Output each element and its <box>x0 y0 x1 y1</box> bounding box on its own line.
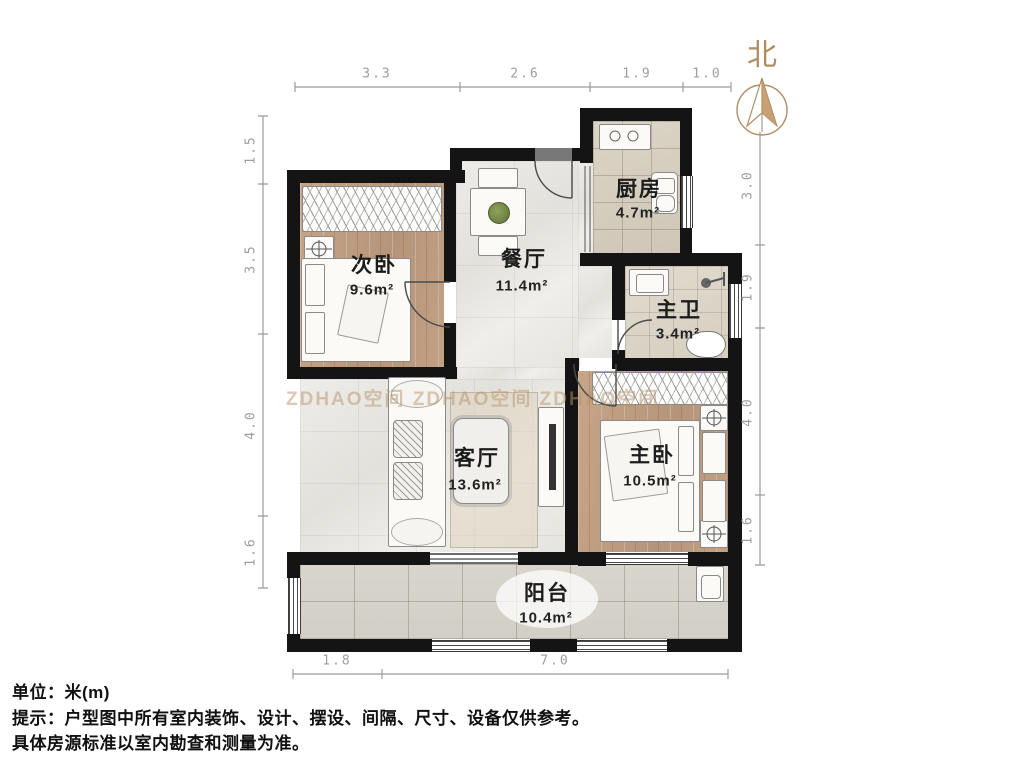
wall-segment <box>287 170 300 379</box>
burners-icon <box>600 125 650 149</box>
pillow <box>678 482 694 532</box>
wall-segment <box>287 552 300 578</box>
footer-disclaimer-2: 具体房源标准以室内勘查和测量为准。 <box>12 729 310 754</box>
pillow <box>305 264 325 306</box>
dim-right-3: 4.0 <box>741 397 756 426</box>
north-label: 北 <box>747 30 777 74</box>
floorplan-page: 3.3 2.6 1.9 1.0 1.5 3.5 4.0 1.6 3.0 1.9 … <box>0 0 1024 757</box>
wall-segment <box>728 552 742 652</box>
wall-segment <box>518 552 580 565</box>
wall-segment <box>580 253 742 266</box>
wall-segment <box>580 108 692 121</box>
entry-door-leaf <box>535 148 572 161</box>
dim-bottom-2: 7.0 <box>540 654 569 669</box>
washer-drum <box>701 575 721 599</box>
dim-top-1: 3.3 <box>362 67 391 82</box>
pillow <box>678 426 694 476</box>
window-bedroom-balcony <box>606 553 688 565</box>
wall-segment <box>450 148 535 161</box>
wall-segment <box>444 183 456 282</box>
ac-unit-icon <box>700 520 728 548</box>
dim-bottom-1: 1.8 <box>322 654 351 669</box>
basin <box>636 274 664 293</box>
wall-segment <box>450 148 462 183</box>
window-balcony-bottom-1 <box>432 640 530 652</box>
room-label-second-bedroom: 次卧 <box>351 249 397 279</box>
floor-dining-entry <box>578 161 593 266</box>
dining-chair-top <box>478 168 518 188</box>
footer-unit-note: 单位：米(m) <box>12 678 110 703</box>
dim-right-2: 1.9 <box>741 272 756 301</box>
dim-right-4: 1.6 <box>741 515 756 544</box>
dim-left-2: 3.5 <box>244 244 259 273</box>
dim-top-3: 1.9 <box>622 67 651 82</box>
window-balcony-bottom-2 <box>577 640 667 652</box>
room-label-living: 客厅 <box>454 442 500 472</box>
wall-segment <box>530 639 577 652</box>
dim-top-4: 1.0 <box>692 67 721 82</box>
dim-left-1: 1.5 <box>244 135 259 164</box>
window-kitchen <box>681 176 693 228</box>
room-area-dining: 11.4m² <box>496 278 549 295</box>
dim-top-2: 2.6 <box>510 67 539 82</box>
room-label-balcony: 阳台 <box>524 577 570 607</box>
wall-segment <box>444 323 456 379</box>
room-label-master-bedroom: 主卧 <box>629 439 675 469</box>
compass-icon <box>737 78 787 135</box>
room-label-bathroom: 主卫 <box>656 294 702 324</box>
floor-strip <box>457 367 565 379</box>
sofa-armrest <box>391 518 443 546</box>
room-area-master-bedroom: 10.5m² <box>623 473 677 490</box>
washing-machine <box>696 566 724 602</box>
room-area-bathroom: 3.4m² <box>656 326 700 343</box>
ac-fan-icon <box>701 521 727 547</box>
sofa-cushion <box>393 420 423 458</box>
window-balcony-left <box>288 578 301 634</box>
room-label-kitchen: 厨房 <box>616 173 662 203</box>
footer-disclaimer-1: 提示：户型图中所有室内装饰、设计、摆设、间隔、尺寸、设备仅供参考。 <box>12 704 590 729</box>
room-area-kitchen: 4.7m² <box>616 205 660 222</box>
pillow <box>305 312 325 354</box>
room-area-second-bedroom: 9.6m² <box>350 282 394 299</box>
room-area-living: 13.6m² <box>448 477 502 494</box>
room-label-dining: 餐厅 <box>501 243 547 273</box>
dim-left-4: 1.6 <box>244 537 259 566</box>
wall-segment <box>578 552 606 566</box>
wall-segment <box>612 266 625 320</box>
dim-right-1: 3.0 <box>741 170 756 199</box>
wall-segment <box>300 552 430 565</box>
floor-hall <box>578 266 612 358</box>
cooktop <box>599 124 651 150</box>
sofa-cushion <box>393 462 423 500</box>
watermark-text: ZDHAO空间 ZDHAO空间 ZDHAO空间 <box>286 384 738 411</box>
dim-left-3: 4.0 <box>244 410 259 439</box>
tv <box>549 424 556 490</box>
nightstand <box>702 480 726 522</box>
wall-segment <box>287 639 432 652</box>
bathroom-sink <box>629 269 669 296</box>
room-area-balcony: 10.4m² <box>519 610 573 627</box>
sliding-door-living-balcony <box>430 553 518 564</box>
nightstand <box>702 432 726 474</box>
wall-segment <box>287 170 465 183</box>
plant-icon <box>488 202 510 224</box>
wall-segment <box>616 358 742 371</box>
wardrobe-second-bedroom <box>302 186 442 232</box>
